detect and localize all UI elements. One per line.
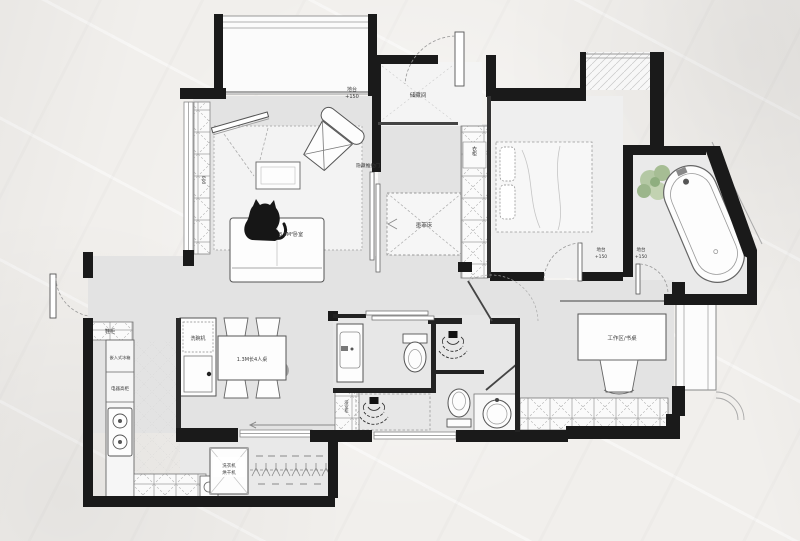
shoe-cabinet-label: 鞋柜 bbox=[105, 328, 115, 335]
coffee-table bbox=[256, 162, 300, 189]
floorplan-canvas: 地台 +150 储藏间 隐藏推拉门 墨菲床 衣柜 600 8.9M²卧室 地台 … bbox=[0, 0, 800, 541]
bath-cabinet-label: 浴室柜 bbox=[344, 399, 350, 414]
entry-door bbox=[50, 274, 88, 318]
dryer-label: 烘干机 bbox=[222, 469, 236, 476]
stove bbox=[108, 408, 132, 456]
washer-label: 洗衣机 bbox=[222, 462, 236, 469]
living-area-label: 8.9M²卧室 bbox=[279, 231, 303, 238]
dining-table-label: 1.3M长4人桌 bbox=[237, 356, 267, 363]
murphy-bed-label: 墨菲床 bbox=[416, 221, 433, 229]
bottom-window bbox=[374, 432, 456, 439]
desk-chair bbox=[600, 360, 638, 392]
hidden-sliding-door-label: 隐藏推拉门 bbox=[356, 162, 380, 169]
pillow bbox=[500, 185, 515, 219]
cabinet-dim-label: 600 bbox=[200, 176, 206, 185]
platform-elevation: +150 bbox=[595, 254, 607, 260]
left-window bbox=[184, 102, 193, 252]
fridge-label: 嵌入式冰箱 bbox=[110, 354, 131, 361]
platform-elevation: +150 bbox=[635, 254, 647, 260]
bedroom bbox=[496, 142, 592, 232]
toilet-1 bbox=[403, 334, 427, 372]
dining bbox=[180, 318, 288, 398]
vanity-sink bbox=[337, 324, 363, 382]
round-basin bbox=[474, 394, 518, 432]
platform-elevation: +150 bbox=[345, 94, 359, 100]
wardrobe-label: 衣柜 bbox=[471, 145, 477, 157]
platform-label: 地台 bbox=[637, 246, 646, 253]
pillow bbox=[500, 147, 515, 181]
island-cabinet bbox=[180, 318, 216, 396]
dishwasher-label: 洗碗机 bbox=[190, 335, 205, 342]
desk-area-label: 工作区/书桌 bbox=[607, 334, 637, 342]
appliance-cabinet-label: 电器高柜 bbox=[111, 385, 129, 392]
storage-room-label: 储藏间 bbox=[410, 91, 427, 99]
floorplan-drawing: 地台 +150 储藏间 隐藏推拉门 墨菲床 衣柜 600 8.9M²卧室 地台 … bbox=[0, 0, 800, 541]
platform-label: 地台 bbox=[347, 86, 357, 93]
platform-label: 地台 bbox=[597, 246, 606, 253]
toilet-2 bbox=[447, 389, 471, 427]
study-wardrobe bbox=[520, 398, 668, 430]
